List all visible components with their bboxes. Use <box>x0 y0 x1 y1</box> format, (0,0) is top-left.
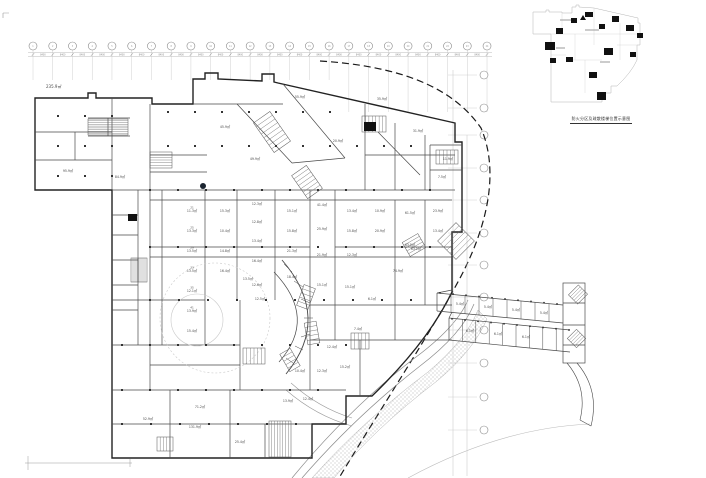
column-dot <box>205 246 207 248</box>
column-dot <box>261 389 263 391</box>
column-dot <box>179 423 181 425</box>
stair-outline <box>157 437 173 451</box>
room-area-label: 7.4㎡ <box>354 326 363 331</box>
column-dot <box>464 319 466 321</box>
dimension-value: 8400 <box>455 54 461 57</box>
dimension-value: 8400 <box>395 54 401 57</box>
inset-core-mark <box>556 28 563 34</box>
column-dot <box>178 299 180 301</box>
inset-core-mark <box>626 25 634 31</box>
inset-core-mark <box>612 16 619 22</box>
dimension-value: 8400 <box>356 54 362 57</box>
stair-tread-line <box>571 333 580 342</box>
column-dot <box>149 389 151 391</box>
stair-tread-line <box>303 289 314 293</box>
stair-hatch-group <box>150 152 172 168</box>
column-dot <box>248 111 250 113</box>
stair-tread-line <box>305 325 317 327</box>
stair-tread-line <box>264 126 280 137</box>
dimension-value: 8400 <box>257 54 263 57</box>
column-dot <box>150 423 152 425</box>
atrium-floor-circle-small <box>171 294 223 346</box>
column-dot <box>295 423 297 425</box>
column-dot <box>317 389 319 391</box>
room-area-label: 13.4㎡ <box>347 208 358 213</box>
stair-outline <box>297 285 316 310</box>
room-area-label: 23.9㎡ <box>433 208 444 213</box>
column-dot <box>517 299 519 301</box>
column-dot <box>57 145 59 147</box>
inset-core-mark <box>599 24 605 29</box>
room-area-label: 12.3㎡ <box>347 252 358 257</box>
column-dot <box>329 111 331 113</box>
room-area-label: 55.9㎡ <box>295 94 306 99</box>
column-dot <box>317 246 319 248</box>
stair-tread-line <box>573 335 582 344</box>
column-dot <box>477 320 479 322</box>
room-area-label: 63.1㎡ <box>411 246 422 251</box>
room-area-label: 52.9㎡ <box>143 416 154 421</box>
inset-caption-text: 防火分区及疏散楼梯位置示意图 <box>570 116 633 124</box>
column-dot <box>451 318 453 320</box>
column-dot <box>261 189 263 191</box>
column-dot <box>478 296 480 298</box>
grid-bubble <box>480 426 488 434</box>
room-area-label: 15.1㎡ <box>345 284 356 289</box>
stair-tread-line <box>447 232 465 250</box>
column-dot <box>345 189 347 191</box>
column-dot <box>345 246 347 248</box>
dimension-value: 8400 <box>297 54 303 57</box>
dimension-value: 8400 <box>376 54 382 57</box>
stair-tread-line <box>294 169 309 179</box>
dimension-value: 8400 <box>178 54 184 57</box>
dimension-value: 8400 <box>139 54 145 57</box>
column-dot <box>207 299 209 301</box>
column-dot <box>401 246 403 248</box>
room-area-label: 13.3㎡ <box>187 228 198 233</box>
column-dot <box>381 299 383 301</box>
walls-diagonal <box>237 84 420 175</box>
column-dot <box>275 145 277 147</box>
room-area-label: 5.4㎡ <box>484 304 493 309</box>
room-area-label: 12.4㎡ <box>327 344 338 349</box>
column-dot <box>248 145 250 147</box>
stair-hatch-group <box>297 285 316 310</box>
column-dot <box>84 115 86 117</box>
room-area-label: 5.4㎡ <box>456 301 465 306</box>
stair-hatch-group <box>292 165 323 198</box>
stair-tread-line <box>261 123 277 134</box>
stairs-escalators <box>88 112 588 457</box>
column-dot <box>236 299 238 301</box>
road-edge-outer <box>408 424 590 478</box>
column-dot <box>323 299 325 301</box>
column-dot <box>177 189 179 191</box>
dimension-value: 8400 <box>336 54 342 57</box>
dimension-value: 8400 <box>277 54 283 57</box>
room-area-label: 13.9㎡ <box>283 398 294 403</box>
column-dot <box>568 329 570 331</box>
column-dot <box>503 323 505 325</box>
column-dot <box>352 299 354 301</box>
room-area-label: 15.1㎡ <box>317 282 328 287</box>
stair-tread-line <box>575 337 584 346</box>
column-dot <box>121 344 123 346</box>
column-dot <box>504 298 506 300</box>
column-dot <box>261 246 263 248</box>
column-dot <box>373 189 375 191</box>
column-dot <box>167 111 169 113</box>
sheet-corner-tick <box>3 13 9 18</box>
column-dot <box>302 111 304 113</box>
grid-bubble <box>480 71 488 79</box>
column-dot <box>205 189 207 191</box>
room-area-label: 18.4㎡ <box>287 274 298 279</box>
stair-tread-line <box>301 293 312 297</box>
column-dot <box>294 299 296 301</box>
bridge-end-block <box>563 283 585 363</box>
room-area-label: 6.1㎡ <box>368 296 377 301</box>
stair-tread-line <box>288 362 298 368</box>
room-area-label: 95.9㎡ <box>63 168 74 173</box>
grid-bubble <box>480 359 488 367</box>
room-area-label: 15.8㎡ <box>287 228 298 233</box>
room-area-label: 5.4㎡ <box>512 307 521 312</box>
inset-core-mark <box>637 33 643 38</box>
column-dot <box>329 145 331 147</box>
stair-tread-line <box>301 178 316 188</box>
column-dot <box>205 344 207 346</box>
column-dot <box>429 189 431 191</box>
stair-tread-line <box>272 137 288 148</box>
grid-bubbles-top: 1840028400384004840058400684007840088400… <box>28 42 492 112</box>
column-dot <box>111 115 113 117</box>
stair-core-fill <box>364 122 376 131</box>
inset-core-mark <box>566 57 573 62</box>
room-area-label: 20.9㎡ <box>333 138 344 143</box>
room-area-label: 13.4㎡ <box>252 238 263 243</box>
dimension-value: 8400 <box>40 54 46 57</box>
column-dot <box>383 145 385 147</box>
room-area-label: 84.9㎡ <box>115 174 126 179</box>
room-area-label: 41.4㎡ <box>317 202 328 207</box>
column-dot <box>556 303 558 305</box>
column-dot <box>233 344 235 346</box>
stair-hatch-group <box>253 112 290 153</box>
room-area-label: 10.9㎡ <box>375 208 386 213</box>
room-area-label: 6.1㎡ <box>494 331 503 336</box>
column-dot <box>84 145 86 147</box>
roads-and-landscape <box>286 70 590 478</box>
floor-plan-sheet: 1840028400384004840058400684007840088400… <box>0 0 706 478</box>
dimension-value: 8400 <box>80 54 86 57</box>
stair-hatch-group <box>157 437 173 451</box>
room-area-label: 21.3㎡ <box>287 248 298 253</box>
bridge-strips <box>437 290 570 352</box>
stair-tread-line <box>282 352 292 358</box>
atrium-floor-circle <box>160 263 270 373</box>
stair-hatch-group <box>269 421 291 457</box>
column-dot <box>194 111 196 113</box>
inset-core-mark <box>589 72 597 78</box>
room-area-label: 16.4㎡ <box>252 258 263 263</box>
column-dot <box>177 246 179 248</box>
room-area-label: 12.6㎡ <box>252 282 263 287</box>
room-area-label: 6.1㎡ <box>466 328 475 333</box>
column-dot <box>221 145 223 147</box>
inset-outline <box>533 5 640 102</box>
dimension-value: 8400 <box>99 54 105 57</box>
column-dot <box>149 299 151 301</box>
inset-caption: 防火分区及疏散楼梯位置示意图 <box>536 116 666 124</box>
grid-bubble <box>480 104 488 112</box>
stair-tread-line <box>296 172 311 182</box>
column-dot <box>542 327 544 329</box>
column-dot <box>317 189 319 191</box>
room-area-label: 10.4㎡ <box>220 228 231 233</box>
room-area-label: 25.4㎡ <box>235 439 246 444</box>
column-dot <box>345 344 347 346</box>
room-area-label: 61.5㎡ <box>405 210 416 215</box>
column-dot <box>265 299 267 301</box>
stair-tread-line <box>269 134 285 145</box>
room-area-label: 15.4㎡ <box>187 328 198 333</box>
grid-bubbles-right <box>448 71 488 434</box>
column-dot <box>149 189 151 191</box>
column-dot <box>529 325 531 327</box>
column-dot <box>356 145 358 147</box>
column-dot <box>275 111 277 113</box>
room-area-labels: 2111.3㎡2513.3㎡2913.5㎡3313.5㎡3512.1㎡4113.… <box>63 94 549 444</box>
dimension-value: 8400 <box>119 54 125 57</box>
dimension-value: 8400 <box>316 54 322 57</box>
column-dot <box>289 344 291 346</box>
column-dot <box>167 145 169 147</box>
room-area-label: 12.4㎡ <box>303 396 314 401</box>
column-dot <box>543 302 545 304</box>
room-area-label: 15.8㎡ <box>347 228 358 233</box>
room-area-label: 6.1㎡ <box>522 334 531 339</box>
column-dot <box>530 301 532 303</box>
column-dot <box>111 145 113 147</box>
inset-core-mark <box>585 12 593 17</box>
room-area-label: 15.1㎡ <box>287 208 298 213</box>
column-dot <box>177 344 179 346</box>
room-area-label: 14.8㎡ <box>220 248 231 253</box>
dimension-value: 8400 <box>218 54 224 57</box>
column-dot <box>233 246 235 248</box>
column-dot <box>429 246 431 248</box>
inset-core-mark <box>597 92 606 100</box>
column-dot <box>439 292 441 294</box>
column-dot <box>465 294 467 296</box>
dimension-value: 8400 <box>60 54 66 57</box>
column-dot <box>194 145 196 147</box>
room-area-label: 25.9㎡ <box>317 226 328 231</box>
column-dot <box>410 299 412 301</box>
column-dot <box>121 389 123 391</box>
column-dot <box>261 344 263 346</box>
room-area-label: 11.3㎡ <box>187 208 198 213</box>
inset-key-plan <box>533 5 643 102</box>
site-area-label: 235.9㎡ <box>46 83 61 89</box>
column-dot <box>491 297 493 299</box>
column-dot <box>149 344 151 346</box>
column-dot <box>373 246 375 248</box>
stair-tread-line <box>298 175 313 185</box>
inset-core-mark <box>550 58 556 63</box>
column-dot <box>289 189 291 191</box>
stair-hatch-group <box>243 348 265 364</box>
room-area-label: 13.5㎡ <box>187 248 198 253</box>
column-dot <box>221 111 223 113</box>
column-dot <box>452 293 454 295</box>
room-area-label: 12.8㎡ <box>252 219 263 224</box>
column-dot <box>289 389 291 391</box>
room-area-label: 7.5㎡ <box>438 174 447 179</box>
grid-bubble <box>480 393 488 401</box>
column-dot <box>516 324 518 326</box>
column-dot <box>289 246 291 248</box>
dimension-value: 8400 <box>237 54 243 57</box>
room-area-label: 5.4㎡ <box>540 310 549 315</box>
stair-tread-line <box>259 119 275 130</box>
stair-core-fill <box>128 214 137 221</box>
dimension-value: 8400 <box>474 54 480 57</box>
room-area-label: 13.9㎡ <box>187 308 198 313</box>
dimension-value: 8400 <box>415 54 421 57</box>
room-area-label: 15.2㎡ <box>340 364 351 369</box>
inset-core-mark <box>545 42 555 50</box>
inset-core-mark <box>571 18 577 23</box>
room-area-label: 45.9㎡ <box>220 124 231 129</box>
room-area-label: 35.9㎡ <box>377 96 388 101</box>
room-area-label: 10.4㎡ <box>295 368 306 373</box>
stair-tread-line <box>303 182 318 192</box>
column-dot <box>149 246 151 248</box>
room-area-label: 16.4㎡ <box>220 268 231 273</box>
column-dot <box>555 328 557 330</box>
column-symbol-dot <box>200 183 206 189</box>
column-dot <box>57 175 59 177</box>
inset-core-mark <box>630 52 636 57</box>
room-area-label: 71.2㎡ <box>195 404 206 409</box>
room-area-label: 49.9㎡ <box>250 156 261 161</box>
column-dot <box>57 115 59 117</box>
column-dot <box>205 389 207 391</box>
stair-tread-line <box>266 130 282 141</box>
column-dot <box>177 389 179 391</box>
column-dot <box>233 189 235 191</box>
room-area-label: 21.9㎡ <box>317 252 328 257</box>
dimension-value: 8400 <box>198 54 204 57</box>
column-dots <box>57 111 570 425</box>
room-area-label: 12.1㎡ <box>187 288 198 293</box>
room-area-label: 13.5㎡ <box>243 276 254 281</box>
room-area-label: 13.5㎡ <box>187 268 198 273</box>
column-dot <box>237 423 239 425</box>
room-area-label: 12.3㎡ <box>252 201 263 206</box>
room-area-label: 12.5㎡ <box>255 296 266 301</box>
inset-core-mark <box>604 48 613 55</box>
room-area-label: 20.9㎡ <box>375 228 386 233</box>
column-dot <box>121 423 123 425</box>
column-dot <box>111 175 113 177</box>
room-area-label: 11.9㎡ <box>443 156 454 161</box>
grid-bubble <box>480 261 488 269</box>
stair-tread-line <box>569 331 578 340</box>
column-dot <box>208 423 210 425</box>
stair-tread-line <box>256 115 272 126</box>
column-dot <box>490 322 492 324</box>
room-area-label: 13.4㎡ <box>433 228 444 233</box>
dimension-value: 8400 <box>435 54 441 57</box>
column-dot <box>266 423 268 425</box>
core-fills <box>128 122 376 221</box>
column-dot <box>84 175 86 177</box>
bridge-tail-curve <box>567 363 594 426</box>
grid-bubble <box>480 164 488 172</box>
room-area-label: 31.9㎡ <box>413 128 424 133</box>
inset-inner-walls <box>551 8 637 93</box>
column-dot <box>317 344 319 346</box>
room-area-label: 74.9㎡ <box>393 268 404 273</box>
column-dot <box>233 389 235 391</box>
column-dot <box>410 145 412 147</box>
dimension-value: 8400 <box>159 54 165 57</box>
column-dot <box>302 145 304 147</box>
atrium-inner-arc <box>274 272 297 362</box>
room-area-label: 12.3㎡ <box>317 368 328 373</box>
stair-hatch-group <box>131 258 147 282</box>
room-area-label: 15.3㎡ <box>220 208 231 213</box>
column-dot <box>401 189 403 191</box>
floor-plan-svg: 1840028400384004840058400684007840088400… <box>0 0 706 478</box>
room-area-label: 131.9㎡ <box>189 424 202 429</box>
grid-bubble <box>480 229 488 237</box>
